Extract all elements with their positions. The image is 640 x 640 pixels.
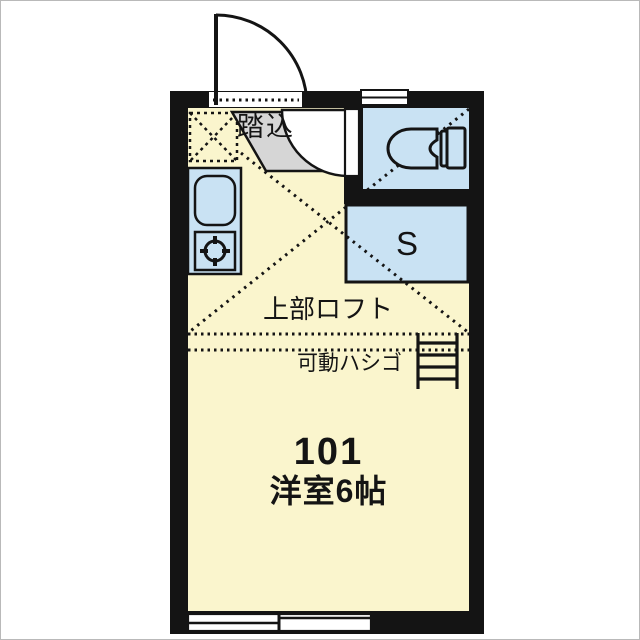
wall-left [170, 91, 188, 634]
kitchen-unit [188, 168, 241, 274]
room-type-label: 洋室6帖 [188, 475, 469, 507]
ladder-label: 可動ハシゴ [297, 353, 402, 374]
sliding-window-icon [188, 611, 371, 632]
entrance-opening [209, 92, 302, 107]
toilet-door-leaf [345, 109, 359, 176]
room-label: 101 洋室6帖 [188, 433, 469, 507]
toilet-icon [388, 128, 465, 168]
wall-toilet-bottom [344, 189, 484, 204]
unit-number-label: 101 [188, 433, 469, 471]
entrance-label: 踏込 [237, 114, 295, 141]
loft-label: 上部ロフト [228, 296, 428, 322]
toilet-window-icon [361, 90, 408, 105]
floorplan-canvas: 踏込 S 上部ロフト 可動ハシゴ 101 洋室6帖 [0, 0, 640, 640]
storage-label: S [346, 205, 468, 282]
wall-right [469, 91, 484, 634]
